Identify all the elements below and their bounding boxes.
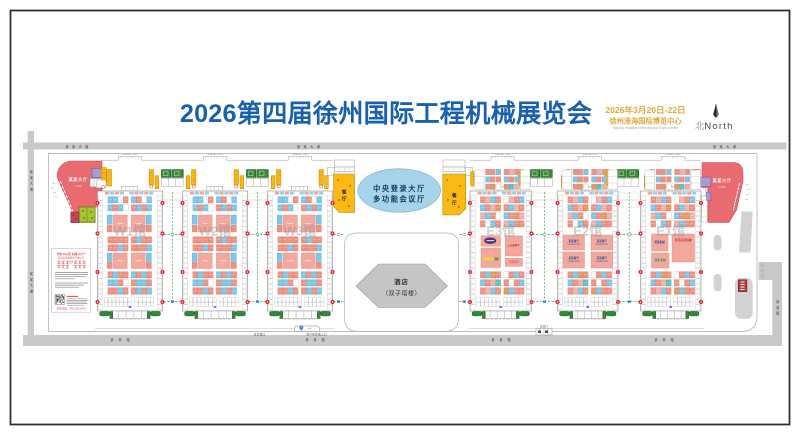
svg-text:SOMETRUK: SOMETRUK	[567, 261, 580, 263]
svg-text:某某某会展服务有限公司: 某某某会展服务有限公司	[58, 256, 85, 260]
svg-text:某 某 路: 某 某 路	[491, 337, 512, 342]
svg-text:E2馆: E2馆	[573, 224, 602, 239]
svg-text:餐: 餐	[341, 189, 347, 196]
svg-text:某某门: 某某门	[540, 324, 548, 328]
svg-text:某某 机械: 某某 机械	[654, 258, 667, 262]
svg-text:某某重汽: 某某重汽	[596, 239, 608, 243]
svg-text:W1馆: W1馆	[114, 224, 147, 239]
svg-text:W3馆: W3馆	[284, 224, 317, 239]
svg-text:北North: 北North	[695, 121, 734, 132]
svg-text:某某热线：400-000-0000: 某某热线：400-000-0000	[56, 307, 86, 311]
svg-text:某某大道: 某某大道	[28, 169, 32, 193]
svg-text:W2馆: W2馆	[199, 224, 232, 239]
svg-text:餐: 餐	[451, 192, 457, 199]
svg-text:某某大道: 某某大道	[65, 144, 91, 149]
svg-text:某某重汽: 某某重汽	[568, 256, 580, 260]
svg-text:Xuzhou Huaihai International E: Xuzhou Huaihai International Expo Center	[613, 126, 679, 130]
svg-text:某 某 路: 某 某 路	[305, 337, 326, 342]
svg-text:某某某某: 某某某某	[509, 260, 519, 264]
svg-text:某某重汽: 某某重汽	[596, 256, 608, 260]
svg-text:多功能会议厅: 多功能会议厅	[373, 195, 426, 204]
svg-text:中央登录大厅: 中央登录大厅	[373, 184, 426, 193]
svg-text:△SANY: △SANY	[507, 244, 520, 248]
svg-text:厅: 厅	[342, 196, 347, 203]
svg-text:某某机械: 某某机械	[653, 240, 665, 244]
svg-text:××Hall: ××Hall	[74, 185, 82, 188]
svg-text:（双子塔楼）: （双子塔楼）	[382, 290, 421, 298]
svg-text:徐州淮海国际博览中心: 徐州淮海国际博览中心	[609, 117, 683, 126]
svg-text:酒店: 酒店	[394, 277, 409, 286]
svg-text:某某大厅: 某某大厅	[713, 177, 732, 184]
svg-text:某某路: 某某路	[775, 299, 779, 317]
svg-text:某某大厅: 某某大厅	[69, 176, 88, 183]
svg-text:××Hall: ××Hall	[718, 186, 726, 189]
svg-text:某某重汽: 某某重汽	[568, 239, 580, 243]
svg-text:2026第四届徐州国际工程机械展览会: 2026第四届徐州国际工程机械展览会	[180, 99, 593, 128]
svg-text:某某大道: 某某大道	[28, 271, 32, 295]
svg-text:某 某 路: 某 某 路	[654, 337, 675, 342]
svg-text:SOMETRUK: SOMETRUK	[595, 261, 608, 263]
svg-text:SOMETRUK: SOMETRUK	[567, 244, 580, 246]
svg-text:某某大道: 某某大道	[713, 144, 739, 149]
svg-text:厅: 厅	[452, 200, 457, 207]
svg-text:2026年3月20日-22日: 2026年3月20日-22日	[605, 104, 685, 115]
svg-text:光地 36㎡起·标摊 9㎡/个: 光地 36㎡起·标摊 9㎡/个	[55, 252, 85, 256]
svg-text:地下停车场入口: 地下停车场入口	[306, 331, 326, 336]
svg-text:某某大道: 某某大道	[297, 144, 323, 149]
svg-text:E1馆: E1馆	[656, 224, 685, 239]
svg-text:某 某 路: 某 某 路	[110, 337, 131, 342]
svg-text:某某某某机械: 某某某某机械	[675, 238, 692, 242]
svg-text:E3馆: E3馆	[486, 224, 515, 239]
svg-text:SOMETRUK: SOMETRUK	[595, 244, 608, 246]
svg-text:某某坡口: 某某坡口	[254, 331, 266, 336]
